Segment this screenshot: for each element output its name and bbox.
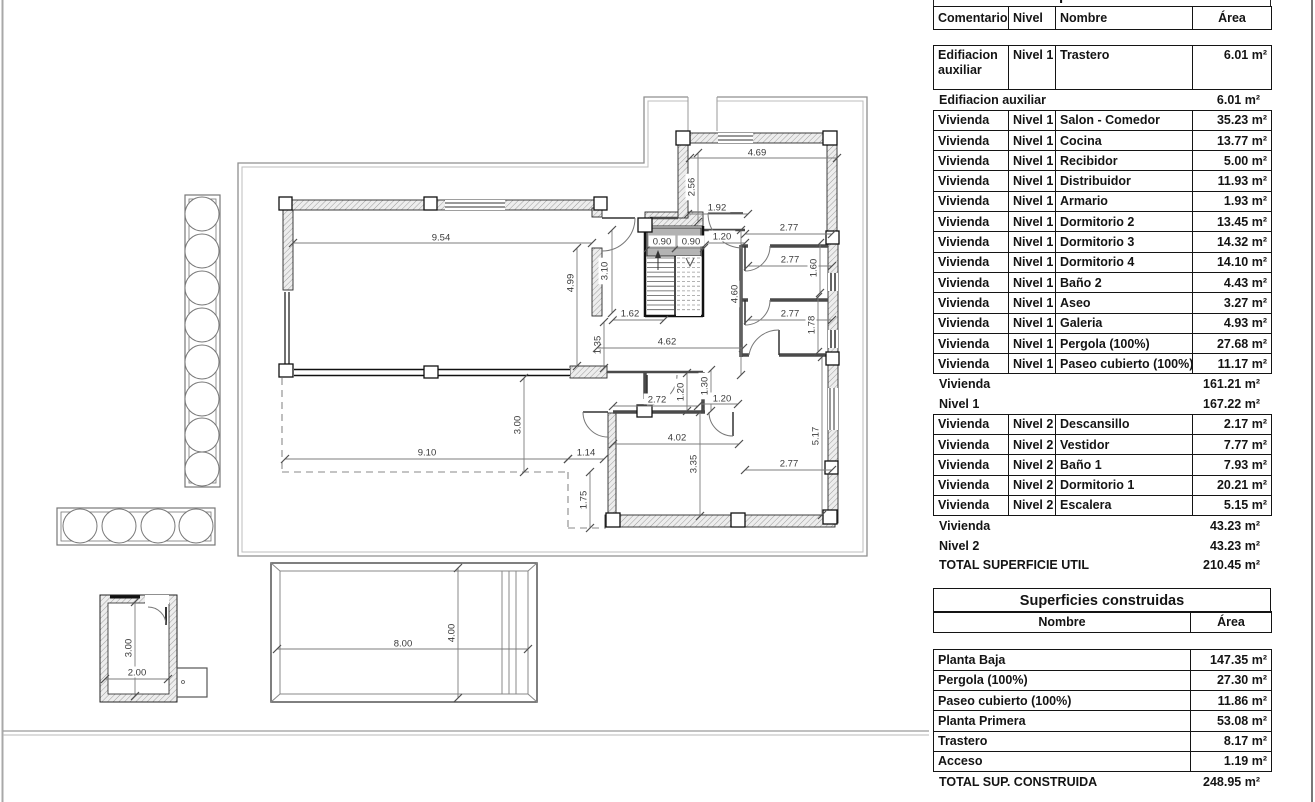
windows (283, 133, 838, 430)
construidas-data-table: Planta Baja147.35 m²Pergola (100%)27.30 … (933, 649, 1272, 772)
cell-comentarios: Vivienda (934, 455, 1009, 475)
subtotal-row: Nivel 1167.22 m² (933, 394, 1271, 414)
cell-comentarios: Vivienda (934, 171, 1009, 191)
row-label: Nivel 2 (933, 539, 979, 553)
cell-nombre: Acceso (934, 751, 1191, 771)
architectural-plan-sheet: { "plan": { "dimensions": [ {"l":"9.54",… (0, 0, 1315, 802)
dimension-label: 1.78 (807, 316, 818, 335)
cell-nombre: Dormitorio 2 (1056, 212, 1193, 232)
cell-area: 53.08 m² (1191, 711, 1272, 731)
table-row: ViviendaNivel 2Escalera5.15 m² (934, 495, 1272, 515)
dimension-label: 1.75 (579, 491, 590, 510)
dimension: 3.00 (512, 374, 529, 476)
row-area-value: 6.01 m² (1170, 93, 1271, 107)
cell-area: 35.23 m² (1193, 110, 1272, 130)
cell-nombre: Paseo cubierto (100%) (934, 690, 1191, 710)
row-label: Vivienda (933, 519, 990, 533)
table-row: ViviendaNivel 2Baño 17.93 m² (934, 455, 1272, 475)
cell-nombre: Vestidor (1056, 434, 1193, 454)
cell-comentarios: Vivienda (934, 191, 1009, 211)
cell-nombre: Pergola (100%) (934, 670, 1191, 690)
table-row: ViviendaNivel 1Paseo cubierto (100%)11.1… (934, 354, 1272, 374)
subtotal-row: Edifiacion auxiliar6.01 m² (933, 90, 1271, 110)
row-label: TOTAL SUPERFICIE UTIL (933, 558, 1089, 572)
table-row: ViviendaNivel 1Aseo3.27 m² (934, 293, 1272, 313)
row-label: Nivel 1 (933, 397, 979, 411)
cell-nivel: Nivel 2 (1009, 414, 1056, 434)
cell-area: 14.10 m² (1193, 252, 1272, 272)
dimension: 1.75 (578, 468, 595, 532)
cell-comentarios: Vivienda (934, 151, 1009, 171)
cell-nombre: Descansillo (1056, 414, 1193, 434)
table-row: ViviendaNivel 1Cocina13.77 m² (934, 130, 1272, 150)
dimension: 1.14 (564, 447, 608, 464)
table-row: ViviendaNivel 2Vestidor7.77 m² (934, 434, 1272, 454)
utiles-title-text: Superficies utiles (934, 0, 1270, 4)
cell-area: 6.01 m² (1193, 46, 1272, 90)
table-row: ViviendaNivel 1Armario1.93 m² (934, 191, 1272, 211)
cell-area: 27.30 m² (1191, 670, 1272, 690)
dimension-label: 2.77 (780, 459, 799, 470)
cell-comentarios: Vivienda (934, 475, 1009, 495)
dimension-label: 2.72 (648, 395, 667, 406)
utiles-header-table: ComentariosNivelNombreÁrea (933, 6, 1272, 30)
row-label: Edifiacion auxiliar (933, 93, 1046, 107)
column-header: Comentarios (934, 7, 1009, 30)
cell-nombre: Paseo cubierto (100%) (1056, 354, 1193, 374)
cell-nivel: Nivel 1 (1009, 333, 1056, 353)
cell-nombre: Trastero (1056, 46, 1193, 90)
cell-comentarios: Vivienda (934, 212, 1009, 232)
dimension: 9.54 (289, 232, 596, 248)
cell-nivel: Nivel 2 (1009, 434, 1056, 454)
table-row: ViviendaNivel 1Galeria4.93 m² (934, 313, 1272, 333)
dimension-label: 3.00 (124, 639, 135, 658)
column-header: Nombre (934, 612, 1191, 633)
dimension-label: 4.62 (658, 337, 677, 348)
cell-area: 4.43 m² (1193, 272, 1272, 292)
cell-comentarios: Vivienda (934, 354, 1009, 374)
cell-nivel: Nivel 2 (1009, 495, 1056, 515)
cell-nivel: Nivel 1 (1009, 272, 1056, 292)
cell-nombre: Dormitorio 3 (1056, 232, 1193, 252)
table-row: Trastero8.17 m² (934, 731, 1272, 751)
dimension-label: 4.00 (447, 624, 458, 643)
dimension-label: 1.30 (700, 377, 711, 396)
row-area-value: 167.22 m² (1170, 397, 1271, 411)
table-row: Acceso1.19 m² (934, 751, 1272, 771)
dimension-label: 1.20 (713, 232, 732, 243)
cell-comentarios: Vivienda (934, 414, 1009, 434)
dimension: 2.77 (741, 222, 836, 239)
utiles-data-table: Edifiacion auxiliarNivel 1Trastero6.01 m… (933, 45, 1272, 90)
tree-row-vertical (185, 195, 220, 487)
cell-comentarios: Vivienda (934, 232, 1009, 252)
row-area-value: 248.95 m² (1170, 775, 1271, 789)
cell-area: 4.93 m² (1193, 313, 1272, 333)
table-row: ViviendaNivel 1Salon - Comedor35.23 m² (934, 110, 1272, 130)
cell-nivel: Nivel 1 (1009, 46, 1056, 90)
cell-area: 7.77 m² (1193, 434, 1272, 454)
cell-area: 13.77 m² (1193, 130, 1272, 150)
dimension-label: 9.10 (418, 448, 437, 459)
cell-nombre: Baño 1 (1056, 455, 1193, 475)
dimension-label: 9.54 (432, 233, 451, 244)
cell-nivel: Nivel 1 (1009, 313, 1056, 333)
dimension-label: 4.69 (748, 148, 767, 159)
column-header: Área (1193, 7, 1272, 30)
row-area-value: 43.23 m² (1170, 539, 1271, 553)
table-row: Edifiacion auxiliarNivel 1Trastero6.01 m… (934, 46, 1272, 90)
cell-area: 8.17 m² (1191, 731, 1272, 751)
floor-plan-drawing: 9.544.993.100.900.901.921.202.564.692.77… (0, 0, 932, 802)
door-salon (602, 218, 635, 251)
dimension-label: 2.56 (687, 178, 698, 197)
dimension-label: 4.60 (730, 285, 741, 304)
cell-nivel: Nivel 1 (1009, 252, 1056, 272)
cell-nivel: Nivel 1 (1009, 110, 1056, 130)
table-row: Pergola (100%)27.30 m² (934, 670, 1272, 690)
dimension: 4.99 (565, 244, 582, 370)
cell-comentarios: Vivienda (934, 130, 1009, 150)
dimension-label: 1.20 (713, 394, 732, 405)
cell-area: 14.32 m² (1193, 232, 1272, 252)
table-row: ViviendaNivel 2Dormitorio 120.21 m² (934, 475, 1272, 495)
utiles-header-row: ComentariosNivelNombreÁrea (934, 7, 1272, 30)
dimension-label: 1.92 (708, 203, 727, 214)
dimension-label: 2.77 (781, 255, 800, 266)
cell-nivel: Nivel 1 (1009, 212, 1056, 232)
cell-comentarios: Edifiacion auxiliar (934, 46, 1009, 90)
cell-area: 3.27 m² (1193, 293, 1272, 313)
cell-area: 11.17 m² (1193, 354, 1272, 374)
cell-nombre: Pergola (100%) (1056, 333, 1193, 353)
dimension-label: 3.00 (513, 416, 524, 435)
door-dormitorio2 (745, 246, 770, 271)
sheet-right-edge (1311, 0, 1313, 802)
pool (271, 563, 537, 702)
cell-nivel: Nivel 1 (1009, 130, 1056, 150)
column-header: Área (1191, 612, 1272, 633)
door-dormitorio3 (745, 300, 770, 325)
cell-area: 13.45 m² (1193, 212, 1272, 232)
table-row: ViviendaNivel 1Recibidor5.00 m² (934, 151, 1272, 171)
dimension-label: 3.35 (689, 455, 700, 474)
dimension-label: 1.62 (621, 309, 640, 320)
superficies-utiles-table: Superficies utiles ComentariosNivelNombr… (933, 0, 1271, 575)
table-row: ViviendaNivel 1Dormitorio 213.45 m² (934, 212, 1272, 232)
cell-comentarios: Vivienda (934, 293, 1009, 313)
cell-nombre: Distribuidor (1056, 171, 1193, 191)
row-area-value: 43.23 m² (1170, 519, 1271, 533)
plot-boundary (238, 94, 867, 556)
cell-nombre: Baño 2 (1056, 272, 1193, 292)
dimension: 3.35 (688, 408, 705, 520)
dimension-label: 1.20 (676, 383, 687, 402)
dimension-label: 2.00 (128, 668, 147, 679)
utiles-data-table: ViviendaNivel 1Salon - Comedor35.23 m²Vi… (933, 110, 1272, 375)
cell-nivel: Nivel 1 (1009, 293, 1056, 313)
construidas-rows: Planta Baja147.35 m²Pergola (100%)27.30 … (933, 649, 1271, 791)
construidas-header-table: NombreÁrea (933, 611, 1272, 633)
dimension-label: 8.00 (394, 639, 413, 650)
cell-nombre: Dormitorio 1 (1056, 475, 1193, 495)
construidas-header-row: NombreÁrea (934, 612, 1272, 633)
table-row: Paseo cubierto (100%)11.86 m² (934, 690, 1272, 710)
table-row: ViviendaNivel 2Descansillo2.17 m² (934, 414, 1272, 434)
cell-nombre: Salon - Comedor (1056, 110, 1193, 130)
dimension-label: 3.10 (600, 262, 611, 281)
door-dormitorio4 (749, 330, 779, 355)
cell-nivel: Nivel 1 (1009, 171, 1056, 191)
column-header: Nivel (1009, 7, 1056, 30)
stair-treads (647, 256, 701, 316)
subtotal-row: Vivienda161.21 m² (933, 374, 1271, 394)
dimension: 2.72 (609, 394, 702, 411)
dimension-label: 2.77 (781, 309, 800, 320)
cell-nombre: Aseo (1056, 293, 1193, 313)
cell-nivel: Nivel 2 (1009, 475, 1056, 495)
cell-comentarios: Vivienda (934, 434, 1009, 454)
dimension: 9.10 (281, 447, 572, 464)
dimension-label: 1.60 (809, 259, 820, 278)
cell-area: 5.00 m² (1193, 151, 1272, 171)
cell-comentarios: Vivienda (934, 495, 1009, 515)
cell-area: 2.17 m² (1193, 414, 1272, 434)
cell-area: 1.93 m² (1193, 191, 1272, 211)
dimension: 5.17 (810, 353, 827, 519)
row-area-value: 210.45 m² (1170, 558, 1271, 572)
cell-area: 147.35 m² (1191, 650, 1272, 670)
row-label: Vivienda (933, 377, 990, 391)
table-row: Planta Baja147.35 m² (934, 650, 1272, 670)
house-walls (283, 133, 838, 527)
utiles-rows: Edifiacion auxiliarNivel 1Trastero6.01 m… (933, 45, 1271, 575)
dimension-label: 4.99 (566, 274, 577, 293)
table-row: Planta Primera53.08 m² (934, 711, 1272, 731)
cell-area: 20.21 m² (1193, 475, 1272, 495)
table-row: ViviendaNivel 1Pergola (100%)27.68 m² (934, 333, 1272, 353)
door-pergola (583, 412, 608, 437)
dimension-label: 5.17 (811, 427, 822, 446)
construidas-title: Superficies construidas (933, 588, 1271, 613)
outbuilding-trastero (100, 595, 207, 702)
cell-nivel: Nivel 1 (1009, 232, 1056, 252)
row-label: TOTAL SUP. CONSTRUIDA (933, 775, 1097, 789)
utiles-data-table: ViviendaNivel 2Descansillo2.17 m²Viviend… (933, 414, 1272, 516)
cell-nivel: Nivel 2 (1009, 455, 1056, 475)
cell-nombre: Planta Primera (934, 711, 1191, 731)
cell-area: 5.15 m² (1193, 495, 1272, 515)
subtotal-row: Nivel 243.23 m² (933, 536, 1271, 556)
cell-nombre: Planta Baja (934, 650, 1191, 670)
table-row: ViviendaNivel 1Distribuidor11.93 m² (934, 171, 1272, 191)
dimension: 1.30 (699, 366, 716, 415)
cell-nombre: Galeria (1056, 313, 1193, 333)
tree-row-horizontal (57, 508, 215, 545)
row-area-value: 161.21 m² (1170, 377, 1271, 391)
cell-nombre: Trastero (934, 731, 1191, 751)
cell-nivel: Nivel 1 (1009, 151, 1056, 171)
dimension-label: 1.14 (577, 448, 596, 459)
dimension-label: 0.90 (682, 237, 701, 248)
superficies-construidas-table: Superficies construidas NombreÁrea Plant… (933, 588, 1271, 792)
door-galeria (709, 412, 733, 436)
cell-area: 7.93 m² (1193, 455, 1272, 475)
dimension-label: 2.77 (780, 223, 799, 234)
cell-area: 11.93 m² (1193, 171, 1272, 191)
cell-nombre: Dormitorio 4 (1056, 252, 1193, 272)
subtotal-row: Vivienda43.23 m² (933, 516, 1271, 536)
cell-nombre: Recibidor (1056, 151, 1193, 171)
cell-comentarios: Vivienda (934, 313, 1009, 333)
cell-comentarios: Vivienda (934, 252, 1009, 272)
dimension-label: 0.90 (653, 237, 672, 248)
cell-comentarios: Vivienda (934, 272, 1009, 292)
dimension-label: 4.02 (668, 433, 687, 444)
cell-area: 1.19 m² (1191, 751, 1272, 771)
cell-comentarios: Vivienda (934, 333, 1009, 353)
cell-nivel: Nivel 1 (1009, 354, 1056, 374)
dimension: 4.62 (593, 336, 747, 353)
pillars (279, 131, 839, 527)
cell-comentarios: Vivienda (934, 110, 1009, 130)
cell-nombre: Escalera (1056, 495, 1193, 515)
cell-nivel: Nivel 1 (1009, 191, 1056, 211)
table-row: ViviendaNivel 1Baño 24.43 m² (934, 272, 1272, 292)
utiles-clipped-title: Superficies utiles (933, 0, 1271, 6)
cell-nombre: Cocina (1056, 130, 1193, 150)
column-header: Nombre (1056, 7, 1193, 30)
total-row: TOTAL SUP. CONSTRUIDA248.95 m² (933, 772, 1271, 792)
cell-area: 11.86 m² (1191, 690, 1272, 710)
table-row: ViviendaNivel 1Dormitorio 314.32 m² (934, 232, 1272, 252)
total-row: TOTAL SUPERFICIE UTIL210.45 m² (933, 555, 1271, 575)
dimension: 4.69 (686, 147, 841, 163)
dimension: 1.78 (806, 293, 823, 356)
table-row: ViviendaNivel 1Dormitorio 414.10 m² (934, 252, 1272, 272)
cell-nombre: Armario (1056, 191, 1193, 211)
pergola-outline (282, 378, 606, 528)
cell-area: 27.68 m² (1193, 333, 1272, 353)
